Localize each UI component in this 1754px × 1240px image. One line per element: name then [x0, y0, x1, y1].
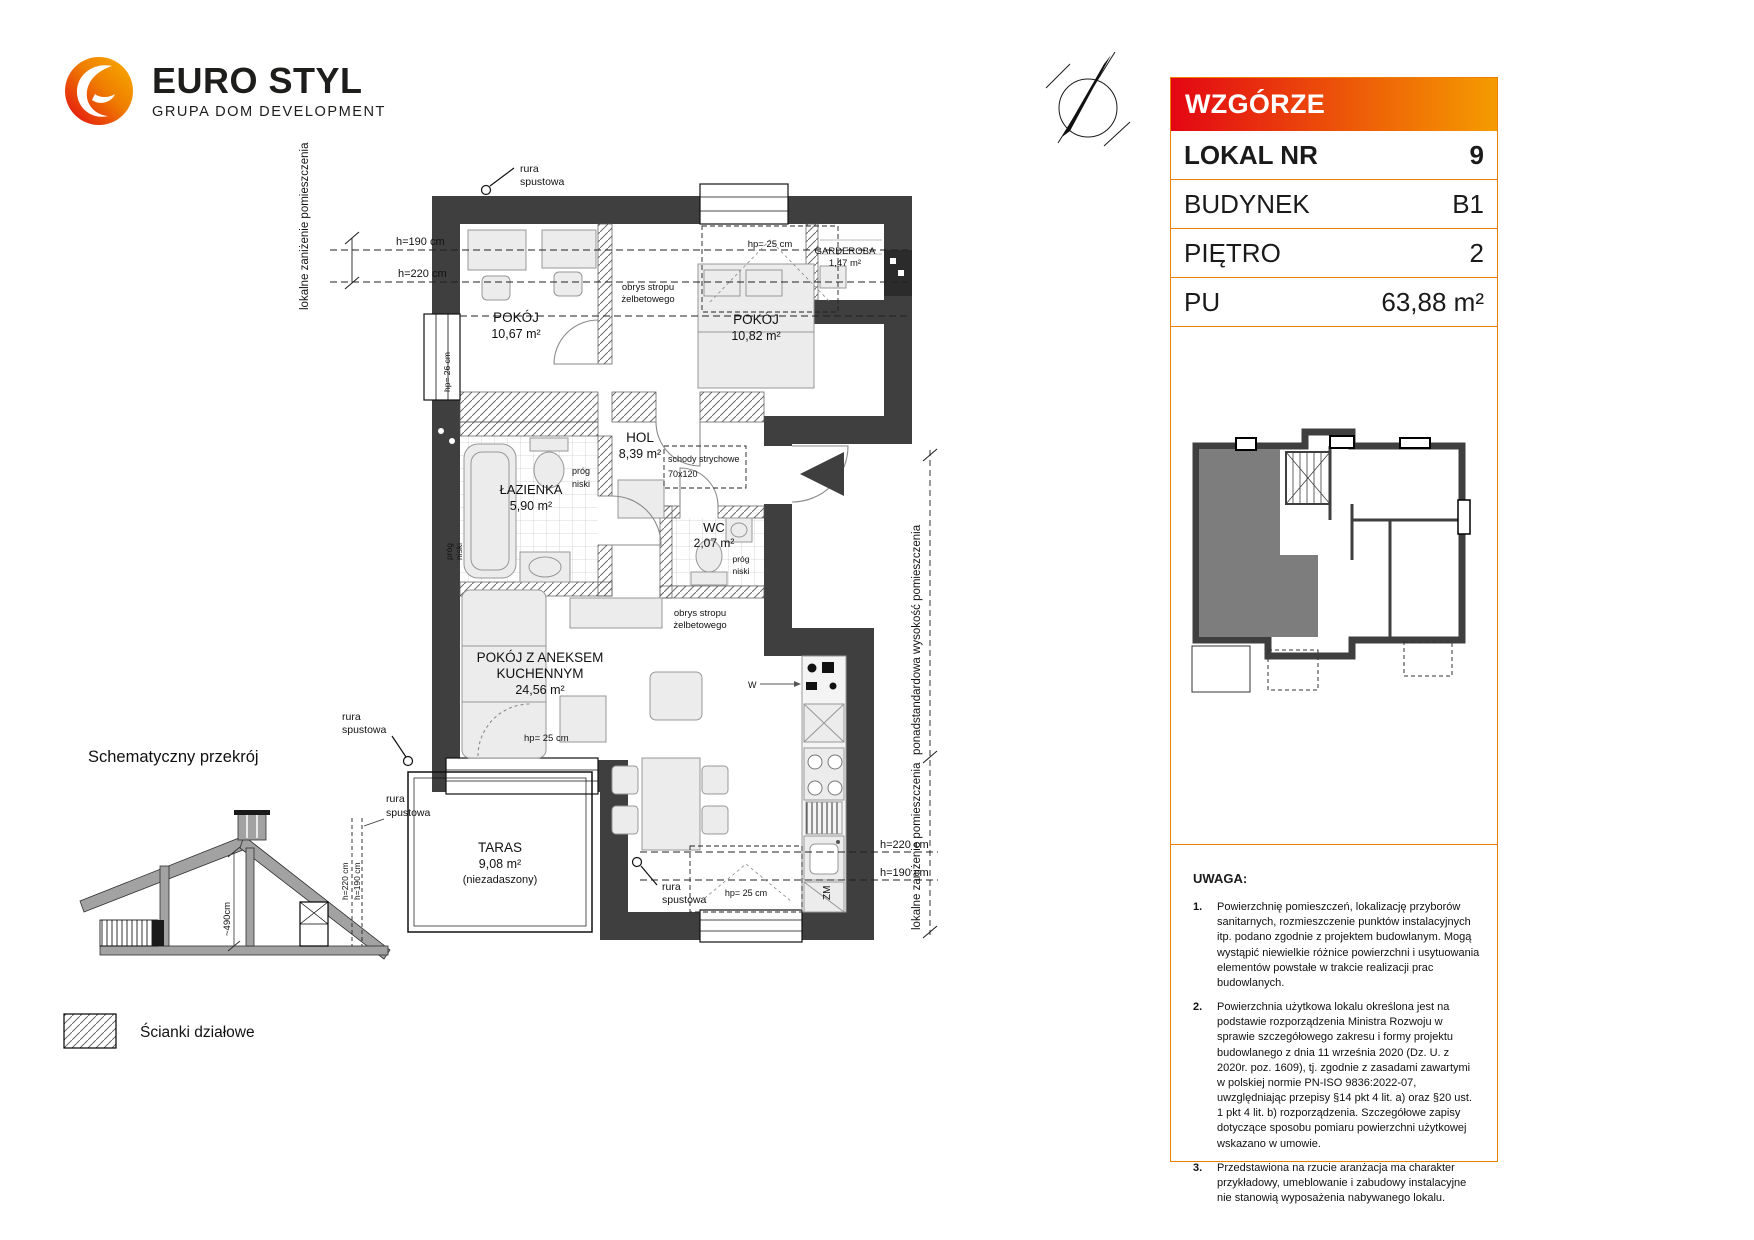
section-h220: h=220 cm [340, 862, 350, 900]
hp25-bottom: hp= 25 cm [725, 888, 767, 898]
vent-arrow-icon [794, 681, 801, 687]
brand-tagline: GRUPA DOM DEVELOPMENT [152, 104, 386, 120]
room-area-taras: 9,08 m² [479, 857, 521, 871]
row-pietro-value: 2 [1470, 238, 1484, 269]
lokalne-zanizenie-left: lokalne zaniżenie pomieszczenia [299, 142, 311, 310]
svg-text:niski: niski [732, 566, 749, 576]
row-budynek-value: B1 [1452, 189, 1484, 220]
room-area-lazienka: 5,90 m² [510, 499, 552, 513]
obrys-stropu-1: obrys stropu [622, 282, 674, 293]
row-pu: PU 63,88 m² [1171, 278, 1497, 327]
room-label-garderoba: GARDEROBA [815, 246, 876, 257]
door-arcs [478, 320, 848, 756]
section-title: Schematyczny przekrój [88, 748, 259, 766]
brand-name: EURO STYL [152, 63, 386, 99]
ponadstandardowa-right: ponadstandardowa wysokość pomieszczenia [911, 524, 923, 755]
row-budynek-label: BUDYNEK [1184, 189, 1310, 220]
room-label-pokoj-2: POKÓJ [733, 312, 779, 327]
obrys-stropu-2: obrys stropu [674, 608, 726, 619]
svg-text:niski: niski [572, 479, 590, 489]
windows [424, 184, 802, 942]
note-number: 3. [1193, 1161, 1217, 1207]
svg-text:70x120: 70x120 [668, 469, 698, 479]
note-item: 3. Przedstawiona na rzucie aranżacja ma … [1193, 1161, 1481, 1207]
hp26-left: hp= 26 cm [442, 352, 452, 392]
section-rura: rura [386, 793, 405, 805]
svg-text:żelbetowego: żelbetowego [621, 294, 674, 305]
section-window [300, 902, 328, 946]
svg-text:próg: próg [444, 543, 454, 560]
prog-niski-tub: próg niski [444, 543, 464, 560]
height-220-top: h=220 cm [398, 268, 447, 280]
prog-niski-bath: próg [572, 466, 590, 476]
room-label-taras: TARAS [478, 840, 522, 855]
w-label: W [748, 680, 757, 690]
partition-walls [460, 224, 818, 598]
cross-section: Schematyczny przekrój ~490cm h=220 cm h=… [80, 748, 431, 959]
furniture [462, 230, 846, 850]
svg-text:spustowa: spustowa [386, 807, 431, 819]
svg-text:spustowa: spustowa [662, 894, 707, 906]
note-number: 1. [1193, 900, 1217, 991]
lokalne-zanizenie-right: lokalne zaniżenie pomieszczenia [911, 762, 923, 930]
room-label-hol: HOL [626, 430, 654, 445]
plan-annotations: rura spustowa rura spustowa rura spustow… [299, 142, 929, 930]
entrance-arrow-icon [800, 452, 844, 496]
note-text: Powierzchnię pomieszczeń, lokalizację pr… [1217, 900, 1481, 991]
svg-text:spustowa: spustowa [520, 176, 565, 188]
height-190-bottom: h=190 cm [880, 867, 929, 879]
note-item: 1. Powierzchnię pomieszczeń, lokalizację… [1193, 900, 1481, 991]
room-note-taras: (niezadaszony) [463, 874, 538, 886]
row-budynek: BUDYNEK B1 [1171, 180, 1497, 229]
svg-text:spustowa: spustowa [342, 724, 387, 736]
height-190-top: h=190 cm [396, 236, 445, 248]
hp25-living: hp= 25 cm [524, 733, 569, 744]
note-number: 2. [1193, 1000, 1217, 1152]
terrace-outline [408, 772, 592, 932]
room-labels: POKÓJ 10,67 m² POKÓJ 10,82 m² GARDEROBA … [463, 246, 876, 886]
dashed-annotations [330, 226, 938, 938]
rura-spustowa-left: rura [342, 711, 361, 723]
logo-text: EURO STYL GRUPA DOM DEVELOPMENT [152, 63, 386, 120]
room-label-salon-2: KUCHENNYM [496, 666, 583, 681]
height-220-bottom: h=220 cm [880, 839, 929, 851]
row-lokal-value: 9 [1470, 140, 1484, 171]
row-pu-value: 63,88 m² [1381, 287, 1484, 318]
kitchen-appliances [802, 656, 846, 912]
room-area-garderoba: 1,47 m² [829, 258, 861, 269]
legend-label: Ścianki działowe [140, 1023, 255, 1041]
prog-niski-wc: próg [732, 554, 749, 564]
notes-title: UWAGA: [1193, 871, 1481, 886]
rura-spustowa-top: rura [520, 163, 539, 175]
row-pietro-label: PIĘTRO [1184, 238, 1281, 269]
chimney [238, 814, 266, 840]
section-height-dim: ~490cm [222, 902, 233, 936]
compass-icon [1046, 52, 1130, 146]
project-title-bar: WZGÓRZE MARKOWCA [1171, 78, 1497, 131]
balcony-railing [100, 920, 158, 946]
room-area-salon: 24,56 m² [515, 683, 564, 697]
property-card-page: EURO STYL GRUPA DOM DEVELOPMENT WZGÓRZE … [0, 0, 1754, 1240]
room-label-lazienka: ŁAZIENKA [500, 482, 563, 497]
row-pu-label: PU [1184, 287, 1220, 318]
room-label-salon-1: POKÓJ Z ANEKSEM [477, 650, 604, 665]
floor-plan: POKÓJ 10,67 m² POKÓJ 10,82 m² GARDEROBA … [299, 142, 938, 942]
svg-text:żelbetowego: żelbetowego [673, 620, 726, 631]
downpipe-markers [392, 168, 657, 885]
hp25-top: hp= 25 cm [748, 239, 793, 250]
row-pietro: PIĘTRO 2 [1171, 229, 1497, 278]
room-label-pokoj-1: POKÓJ [493, 310, 539, 325]
room-area-hol: 8,39 m² [619, 447, 661, 461]
unit-info-panel: WZGÓRZE MARKOWCA LOKAL NR 9 BUDYNEK B1 P… [1170, 77, 1498, 1162]
row-lokal-label: LOKAL NR [1184, 140, 1318, 171]
note-text: Powierzchnia użytkowa lokalu określona j… [1217, 1000, 1481, 1152]
schody-strychowe: schody strychowe [668, 454, 740, 464]
legend-hatch-swatch [64, 1014, 116, 1048]
company-logo: EURO STYL GRUPA DOM DEVELOPMENT [62, 54, 386, 128]
zm-label: ZM [822, 886, 833, 900]
svg-text:niski: niski [454, 543, 464, 560]
rura-spustowa-bottom: rura [662, 881, 681, 893]
room-label-wc: WC [703, 520, 725, 535]
room-area-pokoj-1: 10,67 m² [491, 327, 540, 341]
walls [432, 196, 912, 940]
notes-section: UWAGA: 1. Powierzchnię pomieszczeń, loka… [1171, 844, 1497, 1161]
section-h190: h=190 cm [352, 862, 362, 900]
note-item: 2. Powierzchnia użytkowa lokalu określon… [1193, 1000, 1481, 1152]
note-text: Przedstawiona na rzucie aranżacja ma cha… [1217, 1161, 1481, 1207]
room-area-wc: 2,07 m² [694, 536, 735, 550]
eurostyl-logo-icon [62, 54, 136, 128]
legend: Ścianki działowe [64, 1014, 255, 1048]
room-area-pokoj-2: 10,82 m² [731, 329, 780, 343]
